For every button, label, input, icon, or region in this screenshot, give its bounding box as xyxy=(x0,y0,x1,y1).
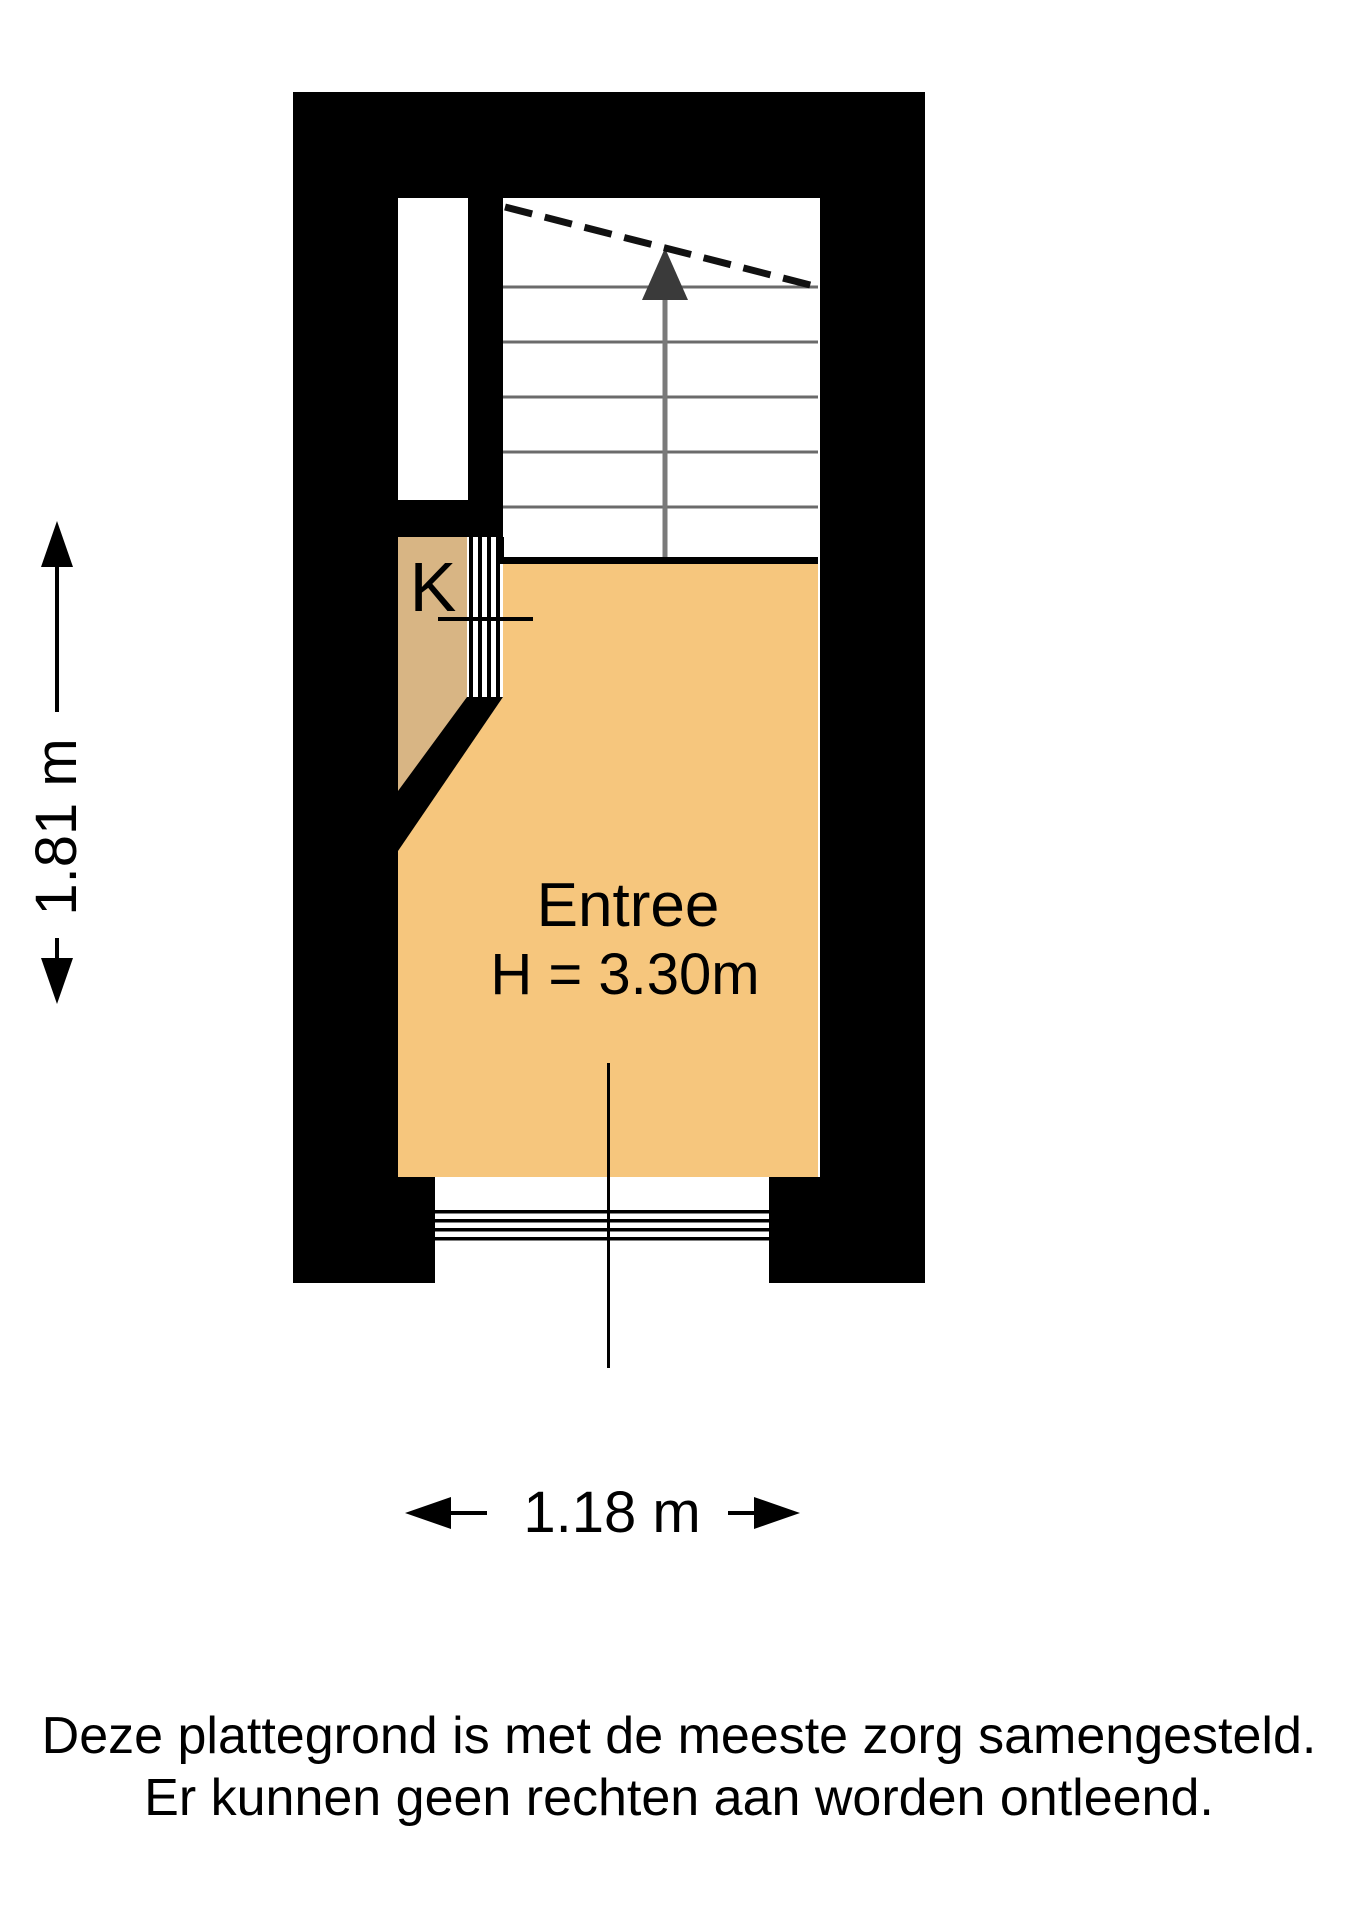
wall-under-niche xyxy=(398,500,468,537)
arrow-up-icon xyxy=(41,521,73,567)
stair-floor-divider xyxy=(503,557,818,564)
arrow-down-icon xyxy=(41,958,73,1004)
arrow-right-icon xyxy=(754,1497,800,1529)
wall-stairwell-strip xyxy=(468,196,503,537)
wall-right xyxy=(820,92,925,1177)
wall-left xyxy=(293,92,398,1177)
front-door-center-line xyxy=(607,1063,610,1368)
closet-k-label: K xyxy=(410,552,457,622)
arrow-left-icon xyxy=(405,1497,451,1529)
disclaimer-line-2: Er kunnen geen rechten aan worden ontlee… xyxy=(0,1768,1358,1829)
wall-left-door-jamb xyxy=(293,1177,435,1283)
dimension-horizontal-label: 1.18 m xyxy=(523,1484,700,1542)
room-name-label: Entree xyxy=(537,875,720,937)
floorplan-page: K Entree H = 3.30m 1.81 m 1.18 m Deze pl… xyxy=(0,0,1358,1920)
disclaimer-line-1: Deze plattegrond is met de meeste zorg s… xyxy=(0,1706,1358,1767)
dimension-vertical-label: 1.81 m xyxy=(28,738,86,915)
wall-right-door-jamb xyxy=(769,1177,925,1283)
room-height-label: H = 3.30m xyxy=(490,946,759,1004)
front-door-threshold xyxy=(435,1210,769,1241)
